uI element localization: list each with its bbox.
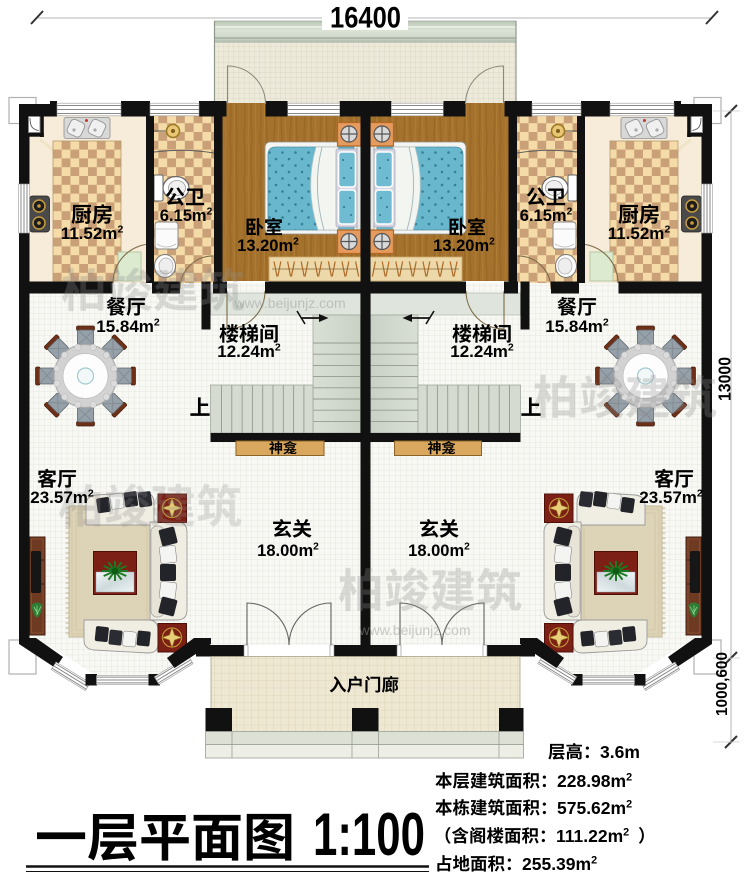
svg-text:1:100: 1:100 <box>313 801 425 868</box>
svg-text:13.20m2: 13.20m2 <box>433 237 495 255</box>
svg-text:12.24m2: 12.24m2 <box>450 342 514 362</box>
svg-text:6.15m2: 6.15m2 <box>160 207 213 225</box>
svg-text:228.98m2: 228.98m2 <box>557 771 632 791</box>
svg-text:575.62m2: 575.62m2 <box>557 798 632 818</box>
svg-text:13.20m2: 13.20m2 <box>237 237 299 255</box>
svg-text:13000: 13000 <box>715 357 735 401</box>
svg-text:12.24m2: 12.24m2 <box>217 342 281 362</box>
svg-text:11.52m2: 11.52m2 <box>61 224 124 244</box>
svg-text:15.84m2: 15.84m2 <box>96 317 160 337</box>
svg-text:3.6m: 3.6m <box>600 742 640 762</box>
svg-text:23.57m2: 23.57m2 <box>30 488 94 508</box>
svg-text:www.beijunjz.com: www.beijunjz.com <box>358 622 470 638</box>
svg-text:1000,600: 1000,600 <box>714 652 731 716</box>
svg-text:www.beijunjz.com: www.beijunjz.com <box>233 295 345 311</box>
svg-text:111.22m2: 111.22m2 <box>556 826 629 846</box>
svg-text:18.00m2: 18.00m2 <box>408 542 470 560</box>
svg-text:6.15m2: 6.15m2 <box>520 207 573 225</box>
svg-text:23.57m2: 23.57m2 <box>639 488 703 508</box>
svg-text:18.00m2: 18.00m2 <box>257 542 319 560</box>
svg-text:15.84m2: 15.84m2 <box>545 317 609 337</box>
svg-text:16400: 16400 <box>330 2 401 35</box>
svg-text:255.39m2: 255.39m2 <box>522 854 597 874</box>
svg-text:11.52m2: 11.52m2 <box>608 224 671 244</box>
